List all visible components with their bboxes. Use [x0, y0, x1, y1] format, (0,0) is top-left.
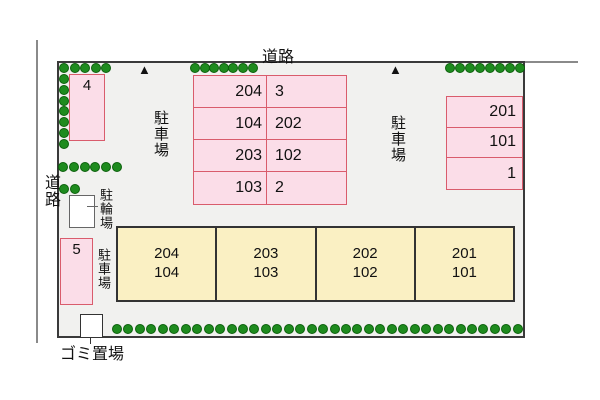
parking-cell: 1	[447, 158, 522, 189]
central-parking-lots: 204 3 104 202 203 102 103 2	[193, 75, 347, 205]
unit-number: 104	[154, 264, 179, 283]
tree-icon	[200, 63, 210, 73]
garbage-box	[80, 314, 103, 338]
tree-icon	[467, 324, 477, 334]
parking-cell: 202	[267, 108, 346, 140]
tree-icon	[59, 139, 69, 149]
tree-icon	[495, 63, 505, 73]
bicycle-parking-label: 駐輪場	[96, 188, 115, 230]
building-unit: 204 104	[118, 228, 217, 300]
tree-icon	[248, 63, 258, 73]
unit-number: 102	[353, 264, 378, 283]
building-unit: 202 102	[317, 228, 416, 300]
unit-number: 101	[452, 264, 477, 283]
unit-number: 204	[154, 245, 179, 264]
parking-cell: 201	[447, 97, 522, 128]
tree-icon	[238, 324, 248, 334]
tree-icon	[410, 324, 420, 334]
tree-icon	[465, 63, 475, 73]
parking-cell: 2	[267, 172, 346, 204]
tree-icon	[330, 324, 340, 334]
triangle-marker-icon: ▲	[389, 63, 402, 76]
apartment-building: 204 104 203 103 202 102 201 101	[116, 226, 515, 302]
tree-icon	[238, 63, 248, 73]
parking-cell: 3	[267, 76, 346, 108]
parking-lot-4: 4	[69, 74, 105, 141]
tree-icon	[215, 324, 225, 334]
tree-icon	[485, 63, 495, 73]
tree-icon	[59, 128, 69, 138]
tree-icon	[112, 162, 122, 172]
tree-icon	[513, 324, 523, 334]
tree-icon	[284, 324, 294, 334]
unit-number: 201	[452, 245, 477, 264]
building-unit: 201 101	[416, 228, 513, 300]
top-road-label: 道路	[262, 43, 294, 67]
unit-number: 103	[253, 264, 278, 283]
tree-icon	[59, 74, 69, 84]
building-unit: 203 103	[217, 228, 316, 300]
parking-cell: 104	[194, 108, 267, 140]
parking-cell: 203	[194, 140, 267, 172]
tree-icon	[433, 324, 443, 334]
parking-cell: 103	[194, 172, 267, 204]
tree-icon	[59, 184, 69, 194]
tree-icon	[80, 162, 90, 172]
tree-icon	[455, 63, 465, 73]
tree-icon	[69, 162, 79, 172]
tree-icon	[59, 85, 69, 95]
tree-icon	[227, 324, 237, 334]
tree-icon	[70, 63, 80, 73]
tree-icon	[261, 324, 271, 334]
triangle-marker-icon: ▲	[138, 63, 151, 76]
tree-icon	[204, 324, 214, 334]
parking-cell: 101	[447, 128, 522, 159]
site-plan-diagram: 道路 道路 ▲ ▲ 4 駐車場 204 3 104 202 203 102 10…	[0, 0, 600, 400]
tree-icon	[158, 324, 168, 334]
parking-area-label: 駐車場	[387, 115, 408, 163]
tree-icon	[444, 324, 454, 334]
tree-icon	[219, 63, 229, 73]
left-road-label: 道路	[38, 174, 62, 208]
parking-area-label: 駐車場	[94, 248, 113, 290]
tree-icon	[475, 63, 485, 73]
tree-icon	[505, 63, 515, 73]
lot-number: 4	[70, 75, 104, 94]
tree-icon	[364, 324, 374, 334]
garbage-area-label: ゴミ置場	[60, 340, 124, 364]
tree-icon	[445, 63, 455, 73]
tree-icon	[70, 184, 80, 194]
unit-number: 203	[253, 245, 278, 264]
tree-icon	[515, 63, 525, 73]
tree-icon	[91, 63, 101, 73]
tree-icon	[112, 324, 122, 334]
tree-icon	[387, 324, 397, 334]
bicycle-parking-box	[69, 195, 95, 228]
tree-icon	[307, 324, 317, 334]
tree-icon	[456, 324, 466, 334]
right-parking-lots: 201 101 1	[446, 96, 523, 190]
tree-icon	[135, 324, 145, 334]
tree-icon	[490, 324, 500, 334]
tree-icon	[59, 63, 69, 73]
tree-icon	[59, 96, 69, 106]
parking-cell: 102	[267, 140, 346, 172]
lot-number: 5	[61, 239, 92, 258]
tree-icon	[58, 162, 68, 172]
tree-icon	[341, 324, 351, 334]
parking-area-label: 駐車場	[150, 110, 171, 158]
tree-icon	[190, 63, 200, 73]
unit-number: 202	[353, 245, 378, 264]
parking-lot-5: 5	[60, 238, 93, 305]
parking-cell: 204	[194, 76, 267, 108]
tree-icon	[181, 324, 191, 334]
